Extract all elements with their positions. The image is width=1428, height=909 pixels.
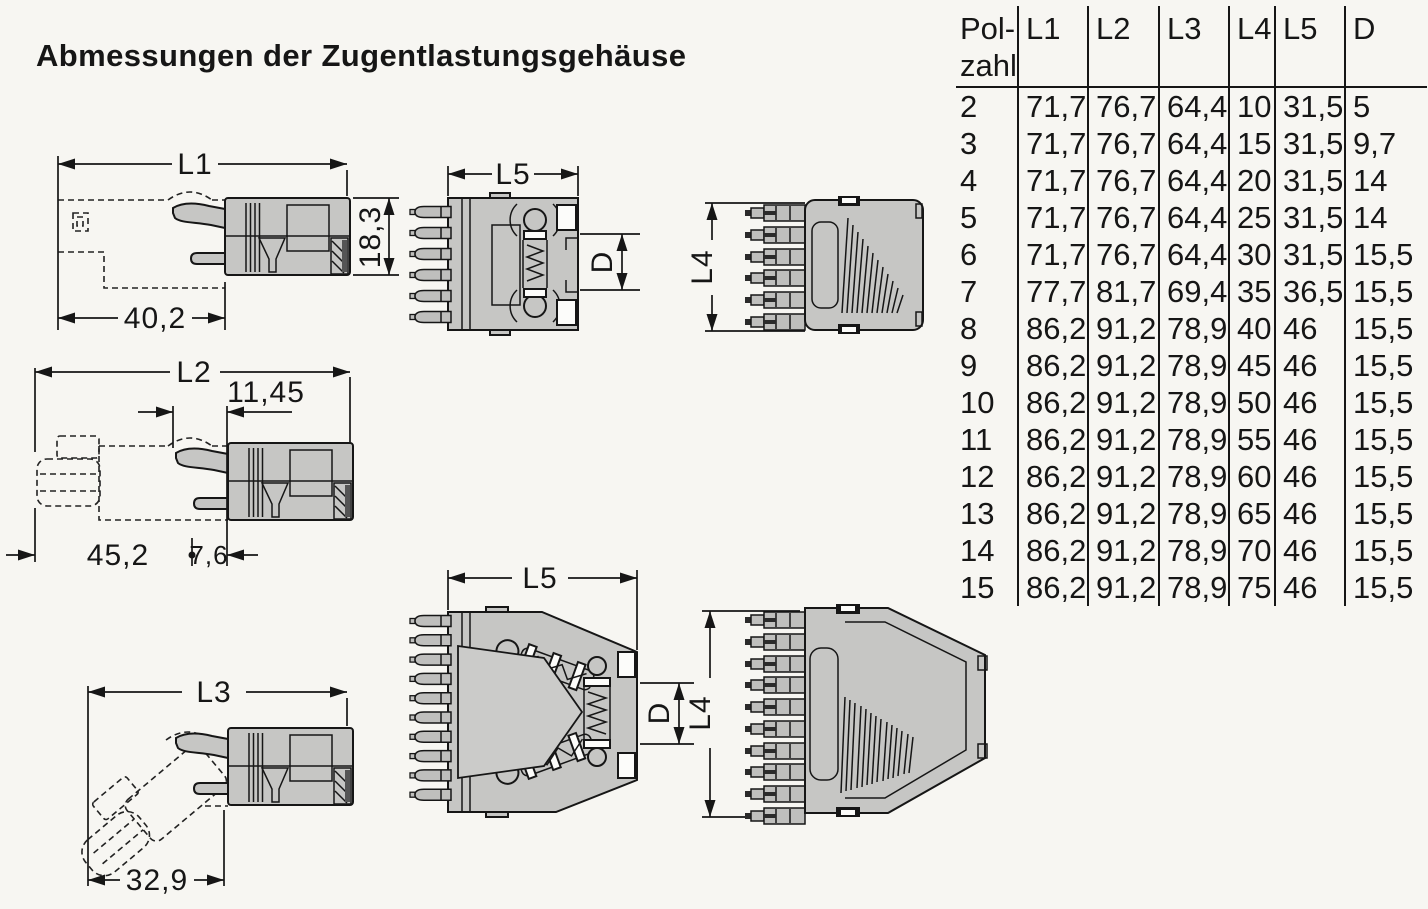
- cell-l3: 78,9: [1159, 495, 1229, 532]
- table-row: 14 86,2 91,2 78,9 70 46 15,5: [956, 532, 1427, 569]
- dimensions-table: Pol-zahl L1 L2 L3 L4 L5 D 2 71,7 76,7 64…: [956, 6, 1427, 606]
- cell-d: 15,5: [1345, 495, 1427, 532]
- cell-l4: 70: [1229, 532, 1275, 569]
- column-header-l2: L2: [1088, 6, 1159, 87]
- table-row: 15 86,2 91,2 78,9 75 46 15,5: [956, 569, 1427, 606]
- cell-polzahl: 2: [956, 87, 1018, 125]
- dim-label-l4-large: L4: [684, 695, 717, 730]
- cell-l3: 64,4: [1159, 125, 1229, 162]
- cell-l1: 86,2: [1018, 421, 1088, 458]
- dim-label-d-small: D: [586, 251, 619, 274]
- cell-l3: 78,9: [1159, 458, 1229, 495]
- column-header-l4: L4: [1229, 6, 1275, 87]
- cell-d: 15,5: [1345, 569, 1427, 606]
- cell-polzahl: 4: [956, 162, 1018, 199]
- cell-l1: 71,7: [1018, 162, 1088, 199]
- cell-d: 14: [1345, 199, 1427, 236]
- cell-l5: 31,5: [1275, 162, 1345, 199]
- column-header-l5: L5: [1275, 6, 1345, 87]
- drawing-side-view-l1: L1 18,3 40,2: [58, 148, 399, 335]
- dim-label-40-2: 40,2: [124, 302, 186, 335]
- table-row: 9 86,2 91,2 78,9 45 46 15,5: [956, 347, 1427, 384]
- cell-l2: 76,7: [1088, 199, 1159, 236]
- table-row: 12 86,2 91,2 78,9 60 46 15,5: [956, 458, 1427, 495]
- cell-l4: 65: [1229, 495, 1275, 532]
- drawing-side-view-l3: L3 32,9: [59, 676, 353, 897]
- cell-d: 15,5: [1345, 273, 1427, 310]
- cell-d: 15,5: [1345, 384, 1427, 421]
- dim-label-l5-large: L5: [522, 562, 557, 595]
- cell-l2: 76,7: [1088, 125, 1159, 162]
- cell-d: 15,5: [1345, 347, 1427, 384]
- cell-l4: 25: [1229, 199, 1275, 236]
- cell-l3: 78,9: [1159, 569, 1229, 606]
- cell-l5: 31,5: [1275, 125, 1345, 162]
- cell-d: 9,7: [1345, 125, 1427, 162]
- table-row: 10 86,2 91,2 78,9 50 46 15,5: [956, 384, 1427, 421]
- cell-polzahl: 13: [956, 495, 1018, 532]
- cell-l5: 46: [1275, 384, 1345, 421]
- cell-d: 15,5: [1345, 458, 1427, 495]
- cell-polzahl: 12: [956, 458, 1018, 495]
- cell-l1: 71,7: [1018, 199, 1088, 236]
- cell-l3: 78,9: [1159, 310, 1229, 347]
- table-row: 2 71,7 76,7 64,4 10 31,5 5: [956, 87, 1427, 125]
- cell-l3: 64,4: [1159, 199, 1229, 236]
- cell-l1: 86,2: [1018, 532, 1088, 569]
- table-row: 13 86,2 91,2 78,9 65 46 15,5: [956, 495, 1427, 532]
- dim-label-l5-small: L5: [495, 158, 530, 191]
- cell-l2: 91,2: [1088, 458, 1159, 495]
- cell-l5: 46: [1275, 458, 1345, 495]
- cell-l2: 91,2: [1088, 569, 1159, 606]
- cell-polzahl: 5: [956, 199, 1018, 236]
- cell-l5: 46: [1275, 495, 1345, 532]
- cell-l4: 30: [1229, 236, 1275, 273]
- cell-d: 15,5: [1345, 310, 1427, 347]
- cell-polzahl: 10: [956, 384, 1018, 421]
- cell-l1: 86,2: [1018, 310, 1088, 347]
- cell-l2: 76,7: [1088, 87, 1159, 125]
- cell-d: 15,5: [1345, 236, 1427, 273]
- cell-polzahl: 3: [956, 125, 1018, 162]
- cell-l5: 36,5: [1275, 273, 1345, 310]
- cell-l2: 76,7: [1088, 162, 1159, 199]
- cell-l3: 64,4: [1159, 162, 1229, 199]
- dim-label-18-3: 18,3: [354, 206, 387, 268]
- cell-polzahl: 11: [956, 421, 1018, 458]
- cell-l1: 86,2: [1018, 458, 1088, 495]
- cell-l3: 69,4: [1159, 273, 1229, 310]
- cell-l1: 86,2: [1018, 495, 1088, 532]
- cell-polzahl: 15: [956, 569, 1018, 606]
- table-row: 3 71,7 76,7 64,4 15 31,5 9,7: [956, 125, 1427, 162]
- cell-l4: 15: [1229, 125, 1275, 162]
- table-row: 5 71,7 76,7 64,4 25 31,5 14: [956, 199, 1427, 236]
- cell-l1: 71,7: [1018, 125, 1088, 162]
- cell-l3: 78,9: [1159, 532, 1229, 569]
- cell-l1: 71,7: [1018, 236, 1088, 273]
- dim-label-d-large: D: [643, 702, 676, 725]
- cell-d: 15,5: [1345, 421, 1427, 458]
- cell-l4: 20: [1229, 162, 1275, 199]
- cell-l4: 35: [1229, 273, 1275, 310]
- column-header-polzahl: Pol-zahl: [956, 6, 1018, 87]
- dim-label-l2: L2: [176, 356, 211, 389]
- dim-label-l3: L3: [196, 676, 231, 709]
- dim-label-11-45: 11,45: [227, 376, 305, 409]
- drawing-top-view-small: L4: [686, 196, 923, 334]
- cell-l3: 64,4: [1159, 87, 1229, 125]
- cell-l1: 86,2: [1018, 347, 1088, 384]
- table-row: 6 71,7 76,7 64,4 30 31,5 15,5: [956, 236, 1427, 273]
- cell-l3: 64,4: [1159, 236, 1229, 273]
- dim-label-7-6: 7,6: [189, 540, 228, 570]
- table-header-row: Pol-zahl L1 L2 L3 L4 L5 D: [956, 6, 1427, 87]
- cell-d: 14: [1345, 162, 1427, 199]
- table-row: 7 77,7 81,7 69,4 35 36,5 15,5: [956, 273, 1427, 310]
- cell-l4: 55: [1229, 421, 1275, 458]
- cell-polzahl: 9: [956, 347, 1018, 384]
- dim-label-45-2: 45,2: [87, 539, 149, 572]
- cell-l2: 91,2: [1088, 347, 1159, 384]
- cell-l1: 71,7: [1018, 87, 1088, 125]
- cell-l4: 75: [1229, 569, 1275, 606]
- cell-l5: 31,5: [1275, 87, 1345, 125]
- cell-l5: 46: [1275, 421, 1345, 458]
- cell-l3: 78,9: [1159, 384, 1229, 421]
- column-header-d: D: [1345, 6, 1427, 87]
- cell-l1: 77,7: [1018, 273, 1088, 310]
- cell-l5: 46: [1275, 310, 1345, 347]
- cell-l5: 46: [1275, 532, 1345, 569]
- dim-label-32-9: 32,9: [126, 864, 188, 897]
- column-header-l1: L1: [1018, 6, 1088, 87]
- cell-l2: 91,2: [1088, 384, 1159, 421]
- cell-l4: 45: [1229, 347, 1275, 384]
- cell-l2: 91,2: [1088, 532, 1159, 569]
- drawing-front-view-small: L5 D: [410, 158, 640, 335]
- cell-l4: 60: [1229, 458, 1275, 495]
- cell-d: 15,5: [1345, 532, 1427, 569]
- cell-l3: 78,9: [1159, 421, 1229, 458]
- table-row: 8 86,2 91,2 78,9 40 46 15,5: [956, 310, 1427, 347]
- column-header-l3: L3: [1159, 6, 1229, 87]
- drawing-top-view-large: L4: [684, 604, 987, 824]
- cell-l4: 40: [1229, 310, 1275, 347]
- table-row: 4 71,7 76,7 64,4 20 31,5 14: [956, 162, 1427, 199]
- cell-l2: 91,2: [1088, 495, 1159, 532]
- cell-l5: 46: [1275, 569, 1345, 606]
- drawing-side-view-l2: L2 11,45 45,2 7,6: [6, 356, 353, 572]
- table-row: 11 86,2 91,2 78,9 55 46 15,5: [956, 421, 1427, 458]
- cell-l5: 31,5: [1275, 236, 1345, 273]
- cell-l2: 81,7: [1088, 273, 1159, 310]
- cell-l3: 78,9: [1159, 347, 1229, 384]
- cell-l5: 31,5: [1275, 199, 1345, 236]
- cell-l4: 10: [1229, 87, 1275, 125]
- cell-l2: 91,2: [1088, 421, 1159, 458]
- dim-label-l1: L1: [177, 148, 212, 181]
- datasheet-page: Abmessungen der Zugentlastungsgehäuse: [0, 0, 1428, 909]
- cell-l1: 86,2: [1018, 569, 1088, 606]
- cell-l4: 50: [1229, 384, 1275, 421]
- cell-d: 5: [1345, 87, 1427, 125]
- cell-polzahl: 7: [956, 273, 1018, 310]
- cell-polzahl: 8: [956, 310, 1018, 347]
- cell-l2: 91,2: [1088, 310, 1159, 347]
- cell-polzahl: 6: [956, 236, 1018, 273]
- drawing-front-view-large: L5 D: [410, 562, 694, 817]
- cell-polzahl: 14: [956, 532, 1018, 569]
- dim-label-l4-small: L4: [686, 249, 719, 284]
- cell-l2: 76,7: [1088, 236, 1159, 273]
- cell-l5: 46: [1275, 347, 1345, 384]
- cell-l1: 86,2: [1018, 384, 1088, 421]
